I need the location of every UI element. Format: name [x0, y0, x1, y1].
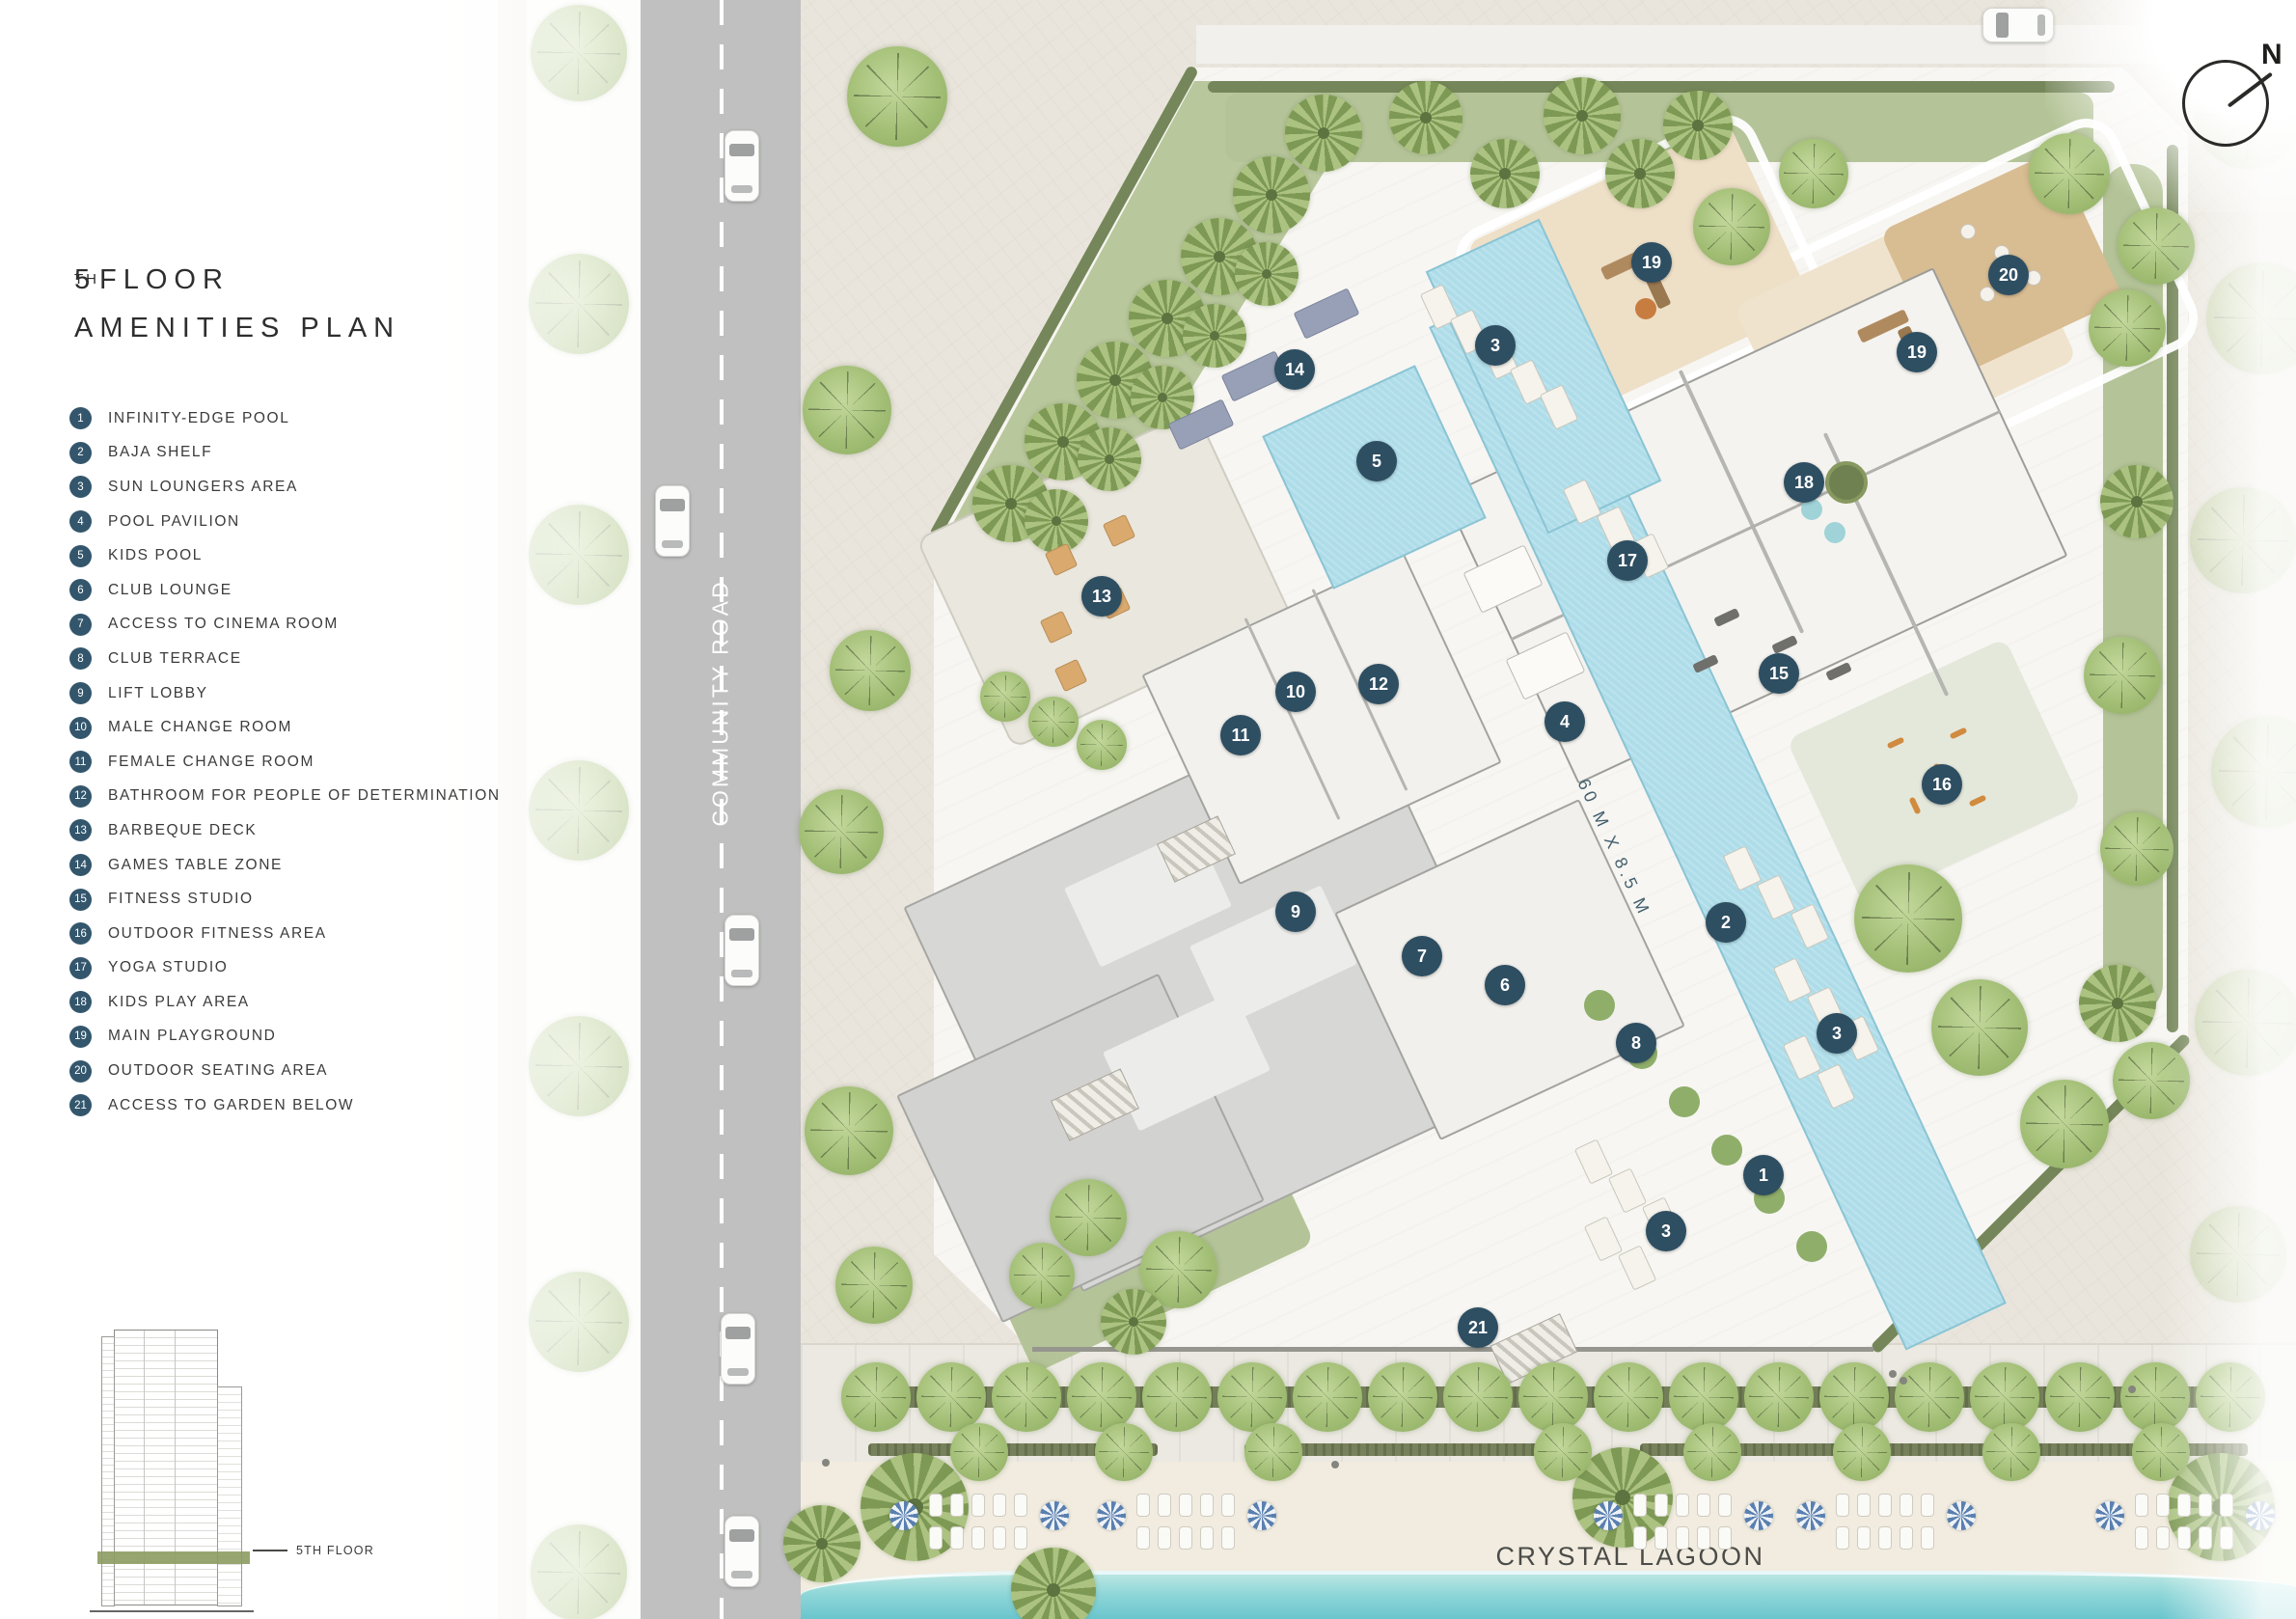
beach-parasol-icon: [1744, 1501, 1773, 1530]
legend-label: MALE CHANGE ROOM: [108, 719, 292, 736]
tree-icon: [1244, 1423, 1302, 1481]
legend-bullet: 14: [69, 854, 92, 876]
tree-icon: [1895, 1362, 1964, 1432]
palm-tree-icon: [1285, 95, 1362, 172]
legend-label: KIDS POOL: [108, 547, 203, 564]
tree-icon: [1693, 188, 1770, 265]
tree-icon: [830, 630, 911, 711]
hedge-shrub: [1711, 1135, 1742, 1166]
beach-parasol-icon: [2095, 1501, 2124, 1530]
tree-icon: [529, 505, 629, 605]
tree-icon: [1067, 1362, 1136, 1432]
kids-splash-pool: [1824, 522, 1845, 543]
beach-lounger: [2156, 1526, 2170, 1550]
beach-lounger: [929, 1526, 943, 1550]
tree-icon: [805, 1086, 893, 1175]
legend-bullet: 15: [69, 889, 92, 911]
plan-marker-4: 4: [1544, 701, 1585, 742]
tree-icon: [1931, 979, 2028, 1076]
legend-item: 4POOL PAVILION: [69, 505, 501, 539]
tree-icon: [847, 46, 947, 147]
palm-tree-icon: [1235, 242, 1298, 306]
plan-marker-14: 14: [1274, 349, 1315, 390]
legend-item: 17YOGA STUDIO: [69, 951, 501, 986]
legend-label: FITNESS STUDIO: [108, 891, 254, 908]
beach-lounger: [2135, 1526, 2148, 1550]
tree-icon: [841, 1362, 911, 1432]
car-windshield: [725, 1327, 751, 1339]
legend-bullet: 10: [69, 717, 92, 739]
beach-parasol-icon: [1796, 1501, 1825, 1530]
page-title: 5TH FLOOR AMENITIES PLAN: [74, 259, 400, 349]
legend-item: 13BARBEQUE DECK: [69, 813, 501, 848]
legend-label: YOGA STUDIO: [108, 959, 228, 976]
person-dot: [1331, 1461, 1339, 1468]
tree-icon: [803, 366, 891, 454]
tree-icon: [2029, 133, 2110, 214]
palm-tree-icon: [1233, 156, 1310, 233]
tree-icon: [2118, 207, 2195, 285]
person-dot: [822, 1459, 830, 1467]
outdoor-seat: [1980, 287, 1995, 302]
legend-label: CLUB LOUNGE: [108, 582, 232, 599]
beach-lounger: [1136, 1494, 1150, 1517]
beach-lounger: [1676, 1494, 1689, 1517]
hedge-shrub: [1584, 990, 1615, 1021]
beach-lounger: [1857, 1494, 1871, 1517]
palm-tree-icon: [1605, 139, 1675, 208]
palm-tree-icon: [1101, 1289, 1166, 1355]
tree-icon: [1594, 1362, 1663, 1432]
tree-icon: [1744, 1362, 1814, 1432]
beach-lounger: [1857, 1526, 1871, 1550]
legend-label: POOL PAVILION: [108, 513, 240, 531]
beach-lounger: [1900, 1526, 1913, 1550]
tree-icon: [1779, 139, 1848, 208]
beach-lounger: [1697, 1526, 1710, 1550]
beach-lounger: [1836, 1494, 1849, 1517]
plan-marker-1: 1: [1743, 1155, 1784, 1195]
west-verge-strip: [498, 0, 527, 1619]
legend-item: 8CLUB TERRACE: [69, 642, 501, 676]
legend-item: 14GAMES TABLE ZONE: [69, 848, 501, 883]
beach-lounger: [1654, 1526, 1668, 1550]
legend-item: 16OUTDOOR FITNESS AREA: [69, 917, 501, 951]
legend-bullet: 1: [69, 407, 92, 429]
car-rear-window: [731, 970, 752, 977]
legend-item: 6CLUB LOUNGE: [69, 573, 501, 608]
tree-icon: [980, 672, 1030, 722]
legend-bullet: 12: [69, 785, 92, 808]
legend: 1INFINITY-EDGE POOL2BAJA SHELF3SUN LOUNG…: [69, 401, 501, 1122]
tree-icon: [2132, 1423, 2190, 1481]
plan-marker-16: 16: [1922, 764, 1962, 805]
legend-label: SUN LOUNGERS AREA: [108, 479, 298, 496]
plan-marker-7: 7: [1402, 936, 1442, 976]
tree-icon: [799, 789, 884, 874]
beach-lounger: [1900, 1494, 1913, 1517]
tree-icon: [1683, 1423, 1741, 1481]
legend-item: 21ACCESS TO GARDEN BELOW: [69, 1088, 501, 1123]
palm-tree-icon: [1078, 427, 1141, 491]
car-rear-window: [662, 540, 683, 548]
tree-icon: [1970, 1362, 2039, 1432]
car: [655, 485, 690, 557]
top-service-path: [1196, 25, 2296, 64]
beach-lounger: [929, 1494, 943, 1517]
tree-icon: [2113, 1042, 2190, 1119]
beach-lounger: [1878, 1526, 1892, 1550]
beach-lounger: [1200, 1494, 1214, 1517]
tree-icon: [2089, 289, 2166, 367]
plan-marker-20: 20: [1988, 255, 2029, 295]
tree-icon: [2196, 1362, 2265, 1432]
beach-lounger: [950, 1494, 964, 1517]
legend-bullet: 17: [69, 957, 92, 979]
kids-play-rug: [1825, 461, 1868, 504]
page-title-line2: AMENITIES PLAN: [74, 307, 400, 349]
legend-bullet: 9: [69, 682, 92, 704]
legend-bullet: 18: [69, 991, 92, 1013]
tree-icon: [1534, 1423, 1592, 1481]
plan-marker-11: 11: [1220, 715, 1261, 755]
legend-bullet: 11: [69, 751, 92, 773]
elevation-floor-callout: 5TH FLOOR: [253, 1544, 374, 1557]
title-floor-number: 5: [74, 259, 96, 301]
legend-label: GAMES TABLE ZONE: [108, 857, 283, 874]
legend-item: 1INFINITY-EDGE POOL: [69, 401, 501, 436]
title-floor-word: FLOOR: [99, 259, 230, 301]
beach-parasol-icon: [1040, 1501, 1069, 1530]
tree-icon: [531, 5, 627, 101]
plan-marker-8: 8: [1616, 1023, 1656, 1063]
legend-bullet: 8: [69, 647, 92, 670]
beach-parasol-icon: [1247, 1501, 1276, 1530]
palm-tree-icon: [2100, 465, 2173, 538]
beach-lounger: [1179, 1526, 1192, 1550]
beach-lounger: [1633, 1494, 1647, 1517]
legend-label: LIFT LOBBY: [108, 685, 208, 702]
tree-icon: [529, 1016, 629, 1116]
beach-lounger: [2177, 1526, 2191, 1550]
beach-lounger: [1836, 1526, 1849, 1550]
beach-parasol-icon: [889, 1501, 918, 1530]
palm-tree-icon: [1183, 304, 1246, 368]
legend-label: FEMALE CHANGE ROOM: [108, 754, 314, 771]
beach-lounger: [1878, 1494, 1892, 1517]
platform-south-edge: [1032, 1347, 1873, 1352]
beach-lounger: [1179, 1494, 1192, 1517]
tree-icon: [2084, 637, 2161, 714]
beach-lounger: [1136, 1526, 1150, 1550]
beach-lounger: [1221, 1526, 1235, 1550]
legend-label: ACCESS TO CINEMA ROOM: [108, 616, 339, 633]
beach-lounger: [1014, 1494, 1027, 1517]
person-dot: [2128, 1386, 2136, 1393]
tree-icon: [1368, 1362, 1437, 1432]
tree-icon: [1443, 1362, 1513, 1432]
tree-icon: [1050, 1179, 1127, 1256]
beach-lounger: [971, 1494, 985, 1517]
legend-label: MAIN PLAYGROUND: [108, 1028, 276, 1045]
legend-bullet: 2: [69, 442, 92, 464]
palm-tree-icon: [783, 1505, 861, 1582]
car: [724, 915, 759, 986]
car-windshield: [660, 499, 685, 511]
plan-marker-21: 21: [1458, 1307, 1498, 1348]
car-windshield: [729, 1529, 754, 1542]
legend-item: 11FEMALE CHANGE ROOM: [69, 745, 501, 780]
palm-tree-icon: [1389, 81, 1462, 154]
legend-label: OUTDOOR FITNESS AREA: [108, 925, 327, 943]
palm-tree-icon: [1663, 91, 1733, 160]
beach-parasol-icon: [1947, 1501, 1976, 1530]
beach-lounger: [1676, 1526, 1689, 1550]
tree-icon: [1028, 697, 1079, 747]
amenities-plan-page: COMMUNITY ROAD CRYSTAL LAGOON 60 M X 8.5…: [0, 0, 2296, 1619]
tree-icon: [1854, 864, 1962, 973]
plan-marker-3: 3: [1817, 1013, 1857, 1054]
legend-bullet: 16: [69, 922, 92, 945]
plan-marker-19: 19: [1631, 242, 1672, 283]
tree-icon: [529, 760, 629, 861]
legend-item: 19MAIN PLAYGROUND: [69, 1020, 501, 1055]
perimeter-hedge-top: [1208, 81, 2115, 93]
plan-marker-13: 13: [1081, 576, 1122, 617]
palm-tree-icon: [1544, 77, 1621, 154]
person-dot: [1889, 1370, 1897, 1378]
palm-tree-icon: [2079, 965, 2156, 1042]
tree-icon: [529, 1272, 629, 1372]
legend-bullet: 19: [69, 1026, 92, 1048]
legend-label: CLUB TERRACE: [108, 650, 242, 668]
beach-lounger: [2177, 1494, 2191, 1517]
elevation-annex: [217, 1386, 242, 1606]
beach-lounger: [2135, 1494, 2148, 1517]
plan-marker-19: 19: [1897, 332, 1937, 372]
tree-icon: [1669, 1362, 1738, 1432]
legend-item: 7ACCESS TO CINEMA ROOM: [69, 608, 501, 643]
compass-needle-icon: [2228, 72, 2273, 108]
car-windshield: [1996, 13, 2009, 38]
beach-lounger: [1921, 1526, 1934, 1550]
car: [724, 130, 759, 202]
plan-marker-15: 15: [1759, 653, 1799, 694]
legend-bullet: 21: [69, 1094, 92, 1116]
legend-label: KIDS PLAY AREA: [108, 994, 250, 1011]
car-rear-window: [727, 1368, 749, 1376]
legend-label: INFINITY-EDGE POOL: [108, 410, 289, 427]
beach-lounger: [1921, 1494, 1934, 1517]
legend-item: 18KIDS PLAY AREA: [69, 985, 501, 1020]
car-rear-window: [2037, 14, 2045, 36]
tree-icon: [950, 1423, 1008, 1481]
tree-icon: [1009, 1243, 1075, 1308]
beach-lounger: [1718, 1494, 1732, 1517]
plan-marker-5: 5: [1356, 441, 1397, 481]
legend-label: ACCESS TO GARDEN BELOW: [108, 1097, 354, 1114]
beach-parasol-icon: [1594, 1501, 1623, 1530]
tree-icon: [2120, 1362, 2190, 1432]
beach-lounger: [993, 1526, 1006, 1550]
plan-marker-3: 3: [1646, 1211, 1686, 1251]
legend-item: 2BAJA SHELF: [69, 436, 501, 471]
tree-icon: [1077, 720, 1127, 770]
plan-marker-17: 17: [1607, 540, 1648, 581]
tree-icon: [1142, 1362, 1212, 1432]
legend-label: BAJA SHELF: [108, 444, 212, 461]
tree-icon: [916, 1362, 986, 1432]
beach-lounger: [2199, 1494, 2212, 1517]
car-windshield: [729, 144, 754, 156]
plan-marker-18: 18: [1784, 462, 1824, 503]
beach-lounger: [1158, 1526, 1171, 1550]
legend-item: 12BATHROOM FOR PEOPLE OF DETERMINATION: [69, 780, 501, 814]
beach-lounger: [1654, 1494, 1668, 1517]
beach-lounger: [1718, 1526, 1732, 1550]
tree-icon: [835, 1247, 913, 1324]
beach-lounger: [2199, 1526, 2212, 1550]
beach-lounger: [2220, 1494, 2233, 1517]
tree-icon: [1095, 1423, 1153, 1481]
beach-lounger: [993, 1494, 1006, 1517]
elevation-5th-floor-band: [97, 1551, 250, 1564]
plan-marker-12: 12: [1358, 664, 1399, 704]
beach-lounger: [2156, 1494, 2170, 1517]
legend-item: 20OUTDOOR SEATING AREA: [69, 1054, 501, 1088]
legend-bullet: 20: [69, 1060, 92, 1083]
legend-item: 15FITNESS STUDIO: [69, 882, 501, 917]
tree-icon: [2195, 970, 2296, 1076]
tree-icon: [2190, 1206, 2286, 1303]
hedge-shrub: [1796, 1231, 1827, 1262]
car-rear-window: [731, 1571, 752, 1578]
palm-tree-icon: [1025, 489, 1088, 553]
tree-icon: [1293, 1362, 1362, 1432]
beach-lounger: [1200, 1526, 1214, 1550]
beach-lounger: [1697, 1494, 1710, 1517]
compass-north-label: N: [2261, 39, 2282, 71]
plan-marker-9: 9: [1275, 892, 1316, 932]
car-windshield: [729, 928, 754, 941]
legend-bullet: 6: [69, 579, 92, 601]
tree-icon: [1217, 1362, 1287, 1432]
beach-lounger: [2220, 1526, 2233, 1550]
plan-marker-6: 6: [1485, 965, 1525, 1005]
elevation-floor-label: 5TH FLOOR: [296, 1544, 374, 1557]
outdoor-seat: [1960, 224, 1976, 239]
tree-icon: [529, 254, 629, 354]
legend-label: BATHROOM FOR PEOPLE OF DETERMINATION: [108, 787, 501, 805]
legend-label: OUTDOOR SEATING AREA: [108, 1062, 328, 1080]
beach-lounger: [1633, 1526, 1647, 1550]
beach-parasol-icon: [2246, 1501, 2275, 1530]
beach-lounger: [950, 1526, 964, 1550]
callout-leader-line: [253, 1550, 287, 1551]
play-spiral: [1635, 298, 1656, 319]
legend-bullet: 4: [69, 510, 92, 533]
community-road-label: COMMUNITY ROAD: [708, 549, 734, 858]
tree-icon: [2020, 1080, 2109, 1168]
legend-bullet: 13: [69, 819, 92, 841]
north-compass: [2182, 60, 2269, 147]
building-elevation: [114, 1330, 218, 1605]
car: [1982, 8, 2054, 42]
beach-lounger: [1014, 1526, 1027, 1550]
beach-lounger: [1221, 1494, 1235, 1517]
legend-item: 10MALE CHANGE ROOM: [69, 710, 501, 745]
tree-icon: [1518, 1362, 1588, 1432]
tree-icon: [1982, 1423, 2040, 1481]
tree-icon: [1819, 1362, 1889, 1432]
palm-tree-icon: [1470, 139, 1540, 208]
legend-item: 5KIDS POOL: [69, 538, 501, 573]
tree-icon: [2190, 487, 2296, 593]
plan-marker-2: 2: [1706, 902, 1746, 943]
hedge-shrub: [1669, 1086, 1700, 1117]
legend-bullet: 5: [69, 545, 92, 567]
person-dot: [1900, 1377, 1907, 1385]
beach-lounger: [971, 1526, 985, 1550]
legend-item: 3SUN LOUNGERS AREA: [69, 470, 501, 505]
beach-parasol-icon: [1097, 1501, 1126, 1530]
car: [724, 1516, 759, 1587]
tree-icon: [531, 1524, 627, 1619]
plan-marker-3: 3: [1475, 325, 1516, 366]
tree-icon: [992, 1362, 1061, 1432]
elevation-ground-line: [90, 1610, 254, 1612]
plan-marker-10: 10: [1275, 672, 1316, 712]
page-title-line1: 5TH FLOOR: [74, 259, 400, 307]
elevation-left-wing: [101, 1336, 115, 1606]
legend-bullet: 3: [69, 476, 92, 498]
car: [721, 1313, 755, 1385]
tree-icon: [1833, 1423, 1891, 1481]
car-rear-window: [731, 185, 752, 193]
tree-icon: [2045, 1362, 2115, 1432]
legend-label: BARBEQUE DECK: [108, 822, 257, 839]
legend-item: 9LIFT LOBBY: [69, 676, 501, 711]
legend-bullet: 7: [69, 614, 92, 636]
beach-lounger: [1158, 1494, 1171, 1517]
tree-icon: [2100, 812, 2173, 886]
